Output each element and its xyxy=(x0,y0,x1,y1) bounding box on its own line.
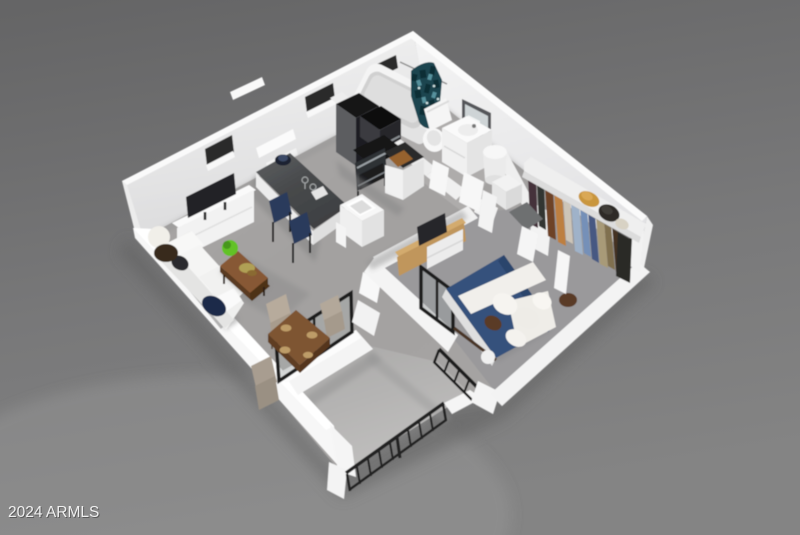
svg-text:2024 ARMLS: 2024 ARMLS xyxy=(8,504,99,521)
